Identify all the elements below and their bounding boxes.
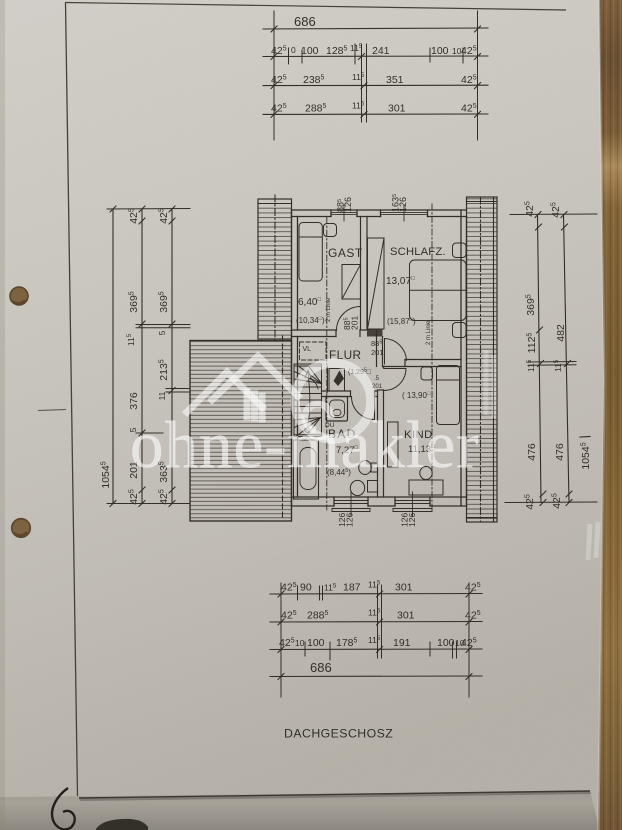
svg-text:482: 482 xyxy=(555,324,567,342)
svg-text:.5: .5 xyxy=(374,376,380,382)
svg-text:DACHGESCHOSZ: DACHGESCHOSZ xyxy=(284,727,393,741)
svg-text:476: 476 xyxy=(526,443,538,461)
svg-text:100: 100 xyxy=(431,45,449,57)
svg-text:10545: 10545 xyxy=(100,461,112,488)
svg-text:201: 201 xyxy=(371,348,384,357)
svg-text:90: 90 xyxy=(300,582,312,594)
svg-text:191: 191 xyxy=(393,637,411,649)
svg-text:11: 11 xyxy=(157,391,167,400)
svg-text:VL: VL xyxy=(303,346,312,353)
svg-text:201: 201 xyxy=(350,316,360,330)
svg-text:476: 476 xyxy=(554,443,566,461)
svg-text:10545: 10545 xyxy=(580,442,592,469)
svg-text:5: 5 xyxy=(157,330,167,335)
svg-text:686: 686 xyxy=(310,660,332,675)
svg-text:301: 301 xyxy=(397,610,415,622)
svg-text:13,07□: 13,07□ xyxy=(386,276,415,287)
svg-text:301: 301 xyxy=(388,103,406,115)
svg-text:100: 100 xyxy=(437,637,455,649)
svg-text:ohne-makler: ohne-makler xyxy=(130,408,480,482)
svg-text:100: 100 xyxy=(307,637,325,649)
svg-text:SCHLAFZ.: SCHLAFZ. xyxy=(390,246,446,258)
svg-text:686: 686 xyxy=(294,14,316,29)
svg-text:126: 126 xyxy=(398,197,408,212)
svg-text:241: 241 xyxy=(372,45,390,57)
svg-text:187: 187 xyxy=(343,582,361,594)
svg-text:126: 126 xyxy=(343,197,353,212)
svg-text:126: 126 xyxy=(345,513,355,527)
svg-text:2 m Linie: 2 m Linie xyxy=(326,297,332,322)
svg-text:GAST: GAST xyxy=(328,246,363,260)
svg-text:126: 126 xyxy=(407,513,417,527)
svg-text:351: 351 xyxy=(386,74,404,86)
svg-text:301: 301 xyxy=(395,582,413,594)
svg-text:( 13,90□: ( 13,90□ xyxy=(402,391,431,400)
svg-text:100: 100 xyxy=(301,45,319,57)
svg-text:0: 0 xyxy=(291,45,296,55)
svg-text:10: 10 xyxy=(295,638,305,648)
svg-text:2 m Linie: 2 m Linie xyxy=(426,320,432,345)
